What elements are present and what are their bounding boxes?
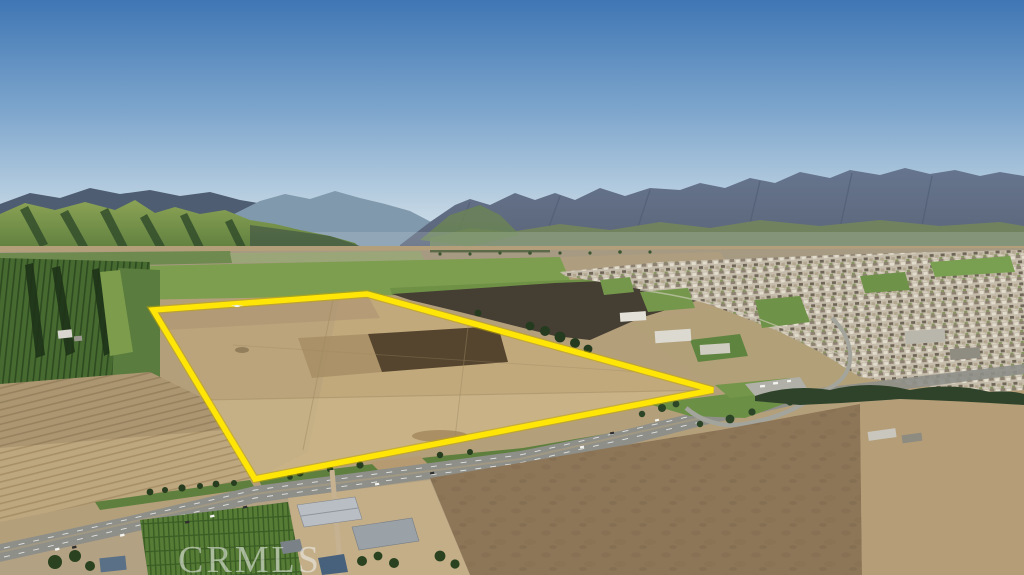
watermark-text: CRMLS — [178, 539, 322, 575]
equipment-spot — [235, 347, 249, 353]
photo-canvas: CRMLS — [0, 0, 1024, 575]
vineyards-left — [0, 258, 160, 388]
parcel-mid-brown — [298, 334, 382, 378]
farm-shed-left — [74, 336, 82, 342]
house-bottom-left — [99, 556, 126, 573]
aerial-photo: CRMLS — [0, 0, 1024, 575]
tan-field-right — [860, 390, 1024, 575]
farm-building-left — [58, 329, 73, 338]
